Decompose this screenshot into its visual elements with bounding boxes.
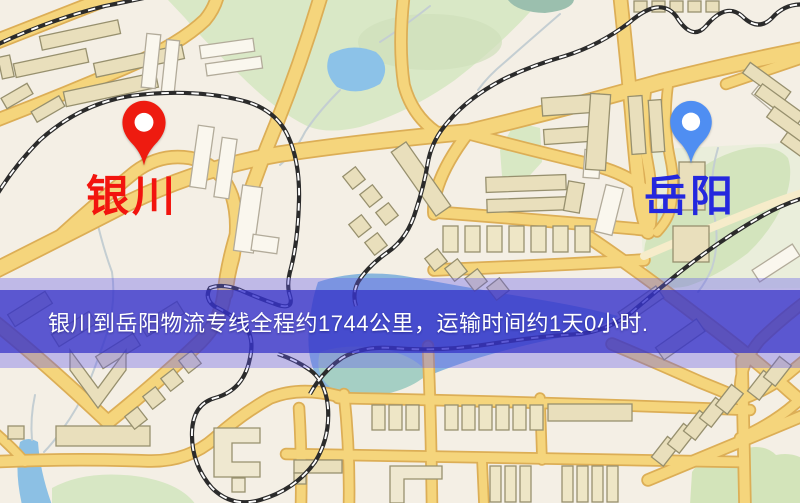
origin-pin-icon[interactable] — [117, 98, 171, 170]
route-info-banner: 银川到岳阳物流专线全程约1744公里，运输时间约1天0小时. — [0, 290, 800, 353]
map-screenshot: 银川到岳阳物流专线全程约1744公里，运输时间约1天0小时. 银川 岳阳 — [0, 0, 800, 503]
map-canvas — [0, 0, 800, 503]
pond — [327, 47, 385, 91]
origin-city-label: 银川 — [86, 176, 178, 219]
route-info-text: 银川到岳阳物流专线全程约1744公里，运输时间约1天0小时. — [48, 306, 649, 338]
destination-pin-icon[interactable] — [665, 98, 717, 168]
destination-city-label: 岳阳 — [644, 176, 736, 219]
